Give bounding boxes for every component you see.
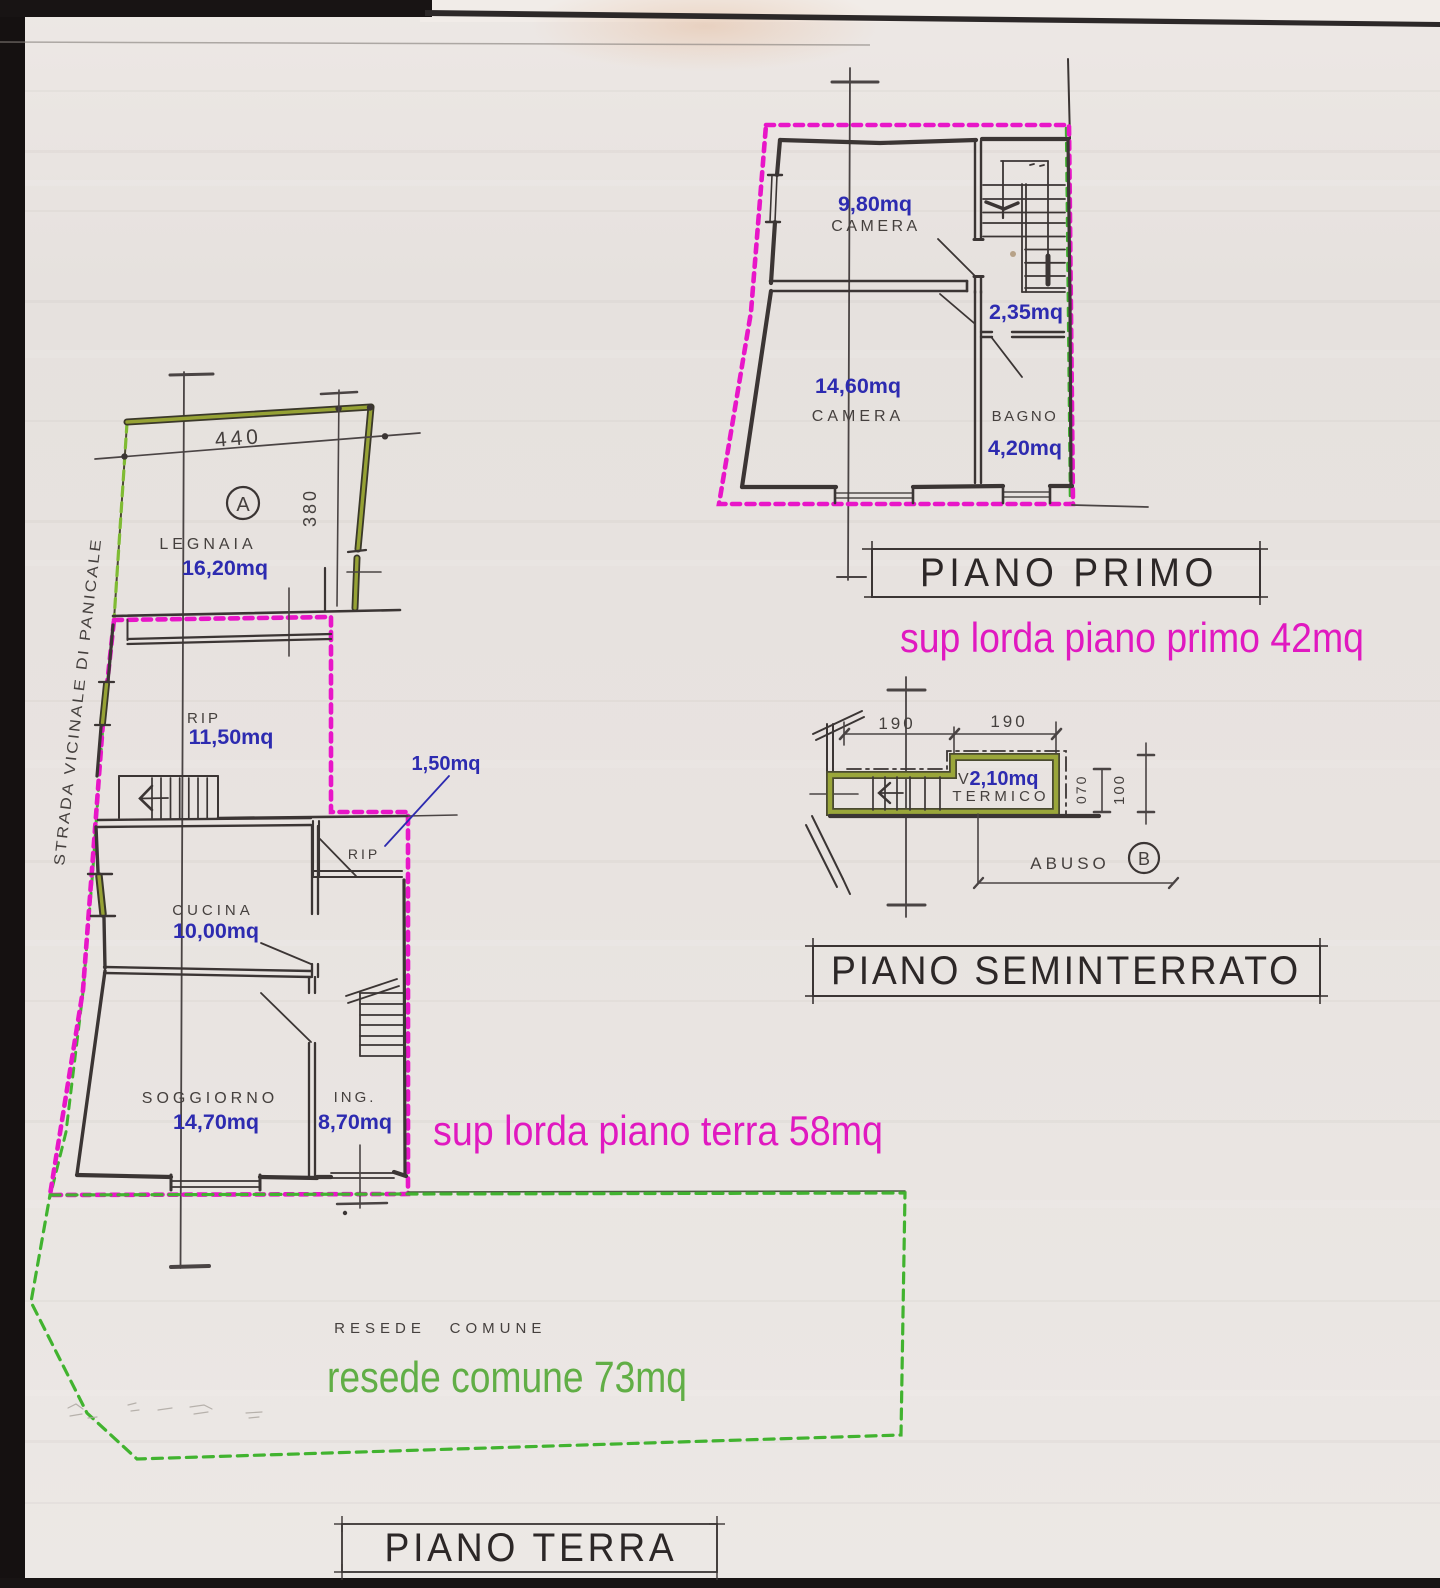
svg-text:070: 070 [1073, 775, 1089, 804]
svg-text:9,80mq: 9,80mq [838, 192, 912, 216]
svg-text:16,20mq: 16,20mq [182, 556, 268, 580]
svg-text:4,20mq: 4,20mq [988, 436, 1062, 460]
svg-text:LEGNAIA: LEGNAIA [159, 536, 256, 553]
svg-text:440: 440 [214, 425, 263, 452]
svg-text:2,35mq: 2,35mq [989, 300, 1063, 324]
svg-text:PIANO TERRA: PIANO TERRA [385, 1526, 678, 1570]
svg-text:BAGNO: BAGNO [992, 408, 1059, 425]
svg-text:ING.: ING. [334, 1089, 377, 1106]
svg-text:COMUNE: COMUNE [450, 1320, 547, 1337]
svg-text:2,10mq: 2,10mq [970, 768, 1039, 790]
svg-text:PIANO PRIMO: PIANO PRIMO [920, 551, 1218, 595]
svg-text:14,60mq: 14,60mq [815, 374, 901, 398]
svg-text:1,50mq: 1,50mq [412, 753, 481, 775]
svg-text:A: A [236, 494, 250, 516]
svg-text:RIP: RIP [348, 846, 380, 862]
svg-text:380: 380 [300, 488, 320, 527]
svg-text:11,50mq: 11,50mq [189, 725, 274, 749]
svg-text:sup lorda piano terra 58mq: sup lorda piano terra 58mq [433, 1107, 883, 1154]
svg-text:190: 190 [878, 714, 915, 733]
svg-text:TERMICO: TERMICO [952, 788, 1049, 805]
svg-text:SOGGIORNO: SOGGIORNO [142, 1090, 278, 1107]
svg-text:190: 190 [990, 712, 1027, 731]
svg-text:sup lorda piano primo 42mq: sup lorda piano primo 42mq [900, 614, 1364, 661]
svg-text:CAMERA: CAMERA [812, 408, 904, 425]
svg-text:B: B [1138, 849, 1150, 869]
svg-text:RESEDE: RESEDE [334, 1320, 426, 1337]
svg-text:CAMERA: CAMERA [831, 218, 920, 235]
svg-text:100: 100 [1111, 774, 1128, 805]
svg-text:10,00mq: 10,00mq [173, 919, 259, 943]
svg-text:PIANO SEMINTERRATO: PIANO SEMINTERRATO [831, 949, 1301, 993]
svg-text:14,70mq: 14,70mq [173, 1110, 259, 1134]
svg-text:8,70mq: 8,70mq [318, 1110, 392, 1134]
svg-text:resede comune 73mq: resede comune 73mq [327, 1353, 687, 1402]
svg-text:ABUSO: ABUSO [1030, 854, 1110, 873]
svg-text:CUCINA: CUCINA [172, 902, 254, 919]
